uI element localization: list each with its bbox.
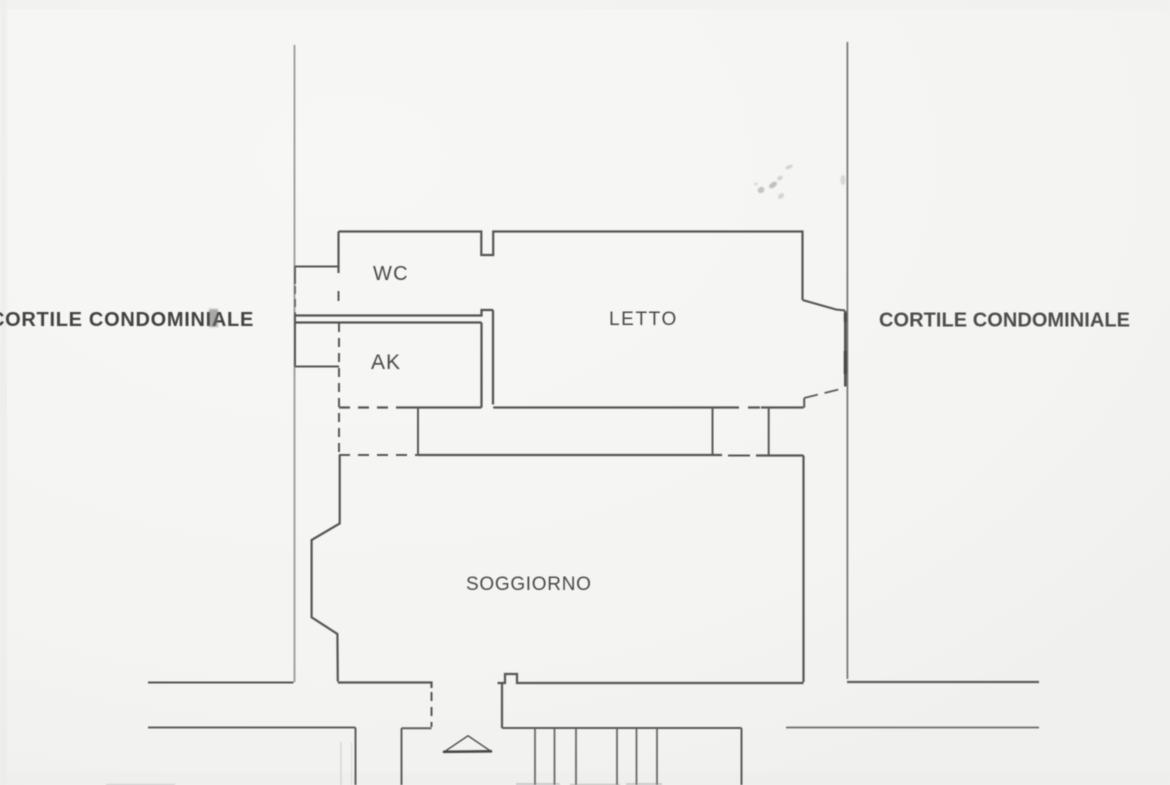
- svg-text:CORTILE CONDOMINIALE: CORTILE CONDOMINIALE: [879, 310, 1130, 332]
- svg-text:LETTO: LETTO: [609, 309, 678, 330]
- svg-text:WC: WC: [373, 263, 409, 285]
- svg-text:AK: AK: [371, 351, 401, 374]
- svg-text:SOGGIORNO: SOGGIORNO: [466, 574, 592, 595]
